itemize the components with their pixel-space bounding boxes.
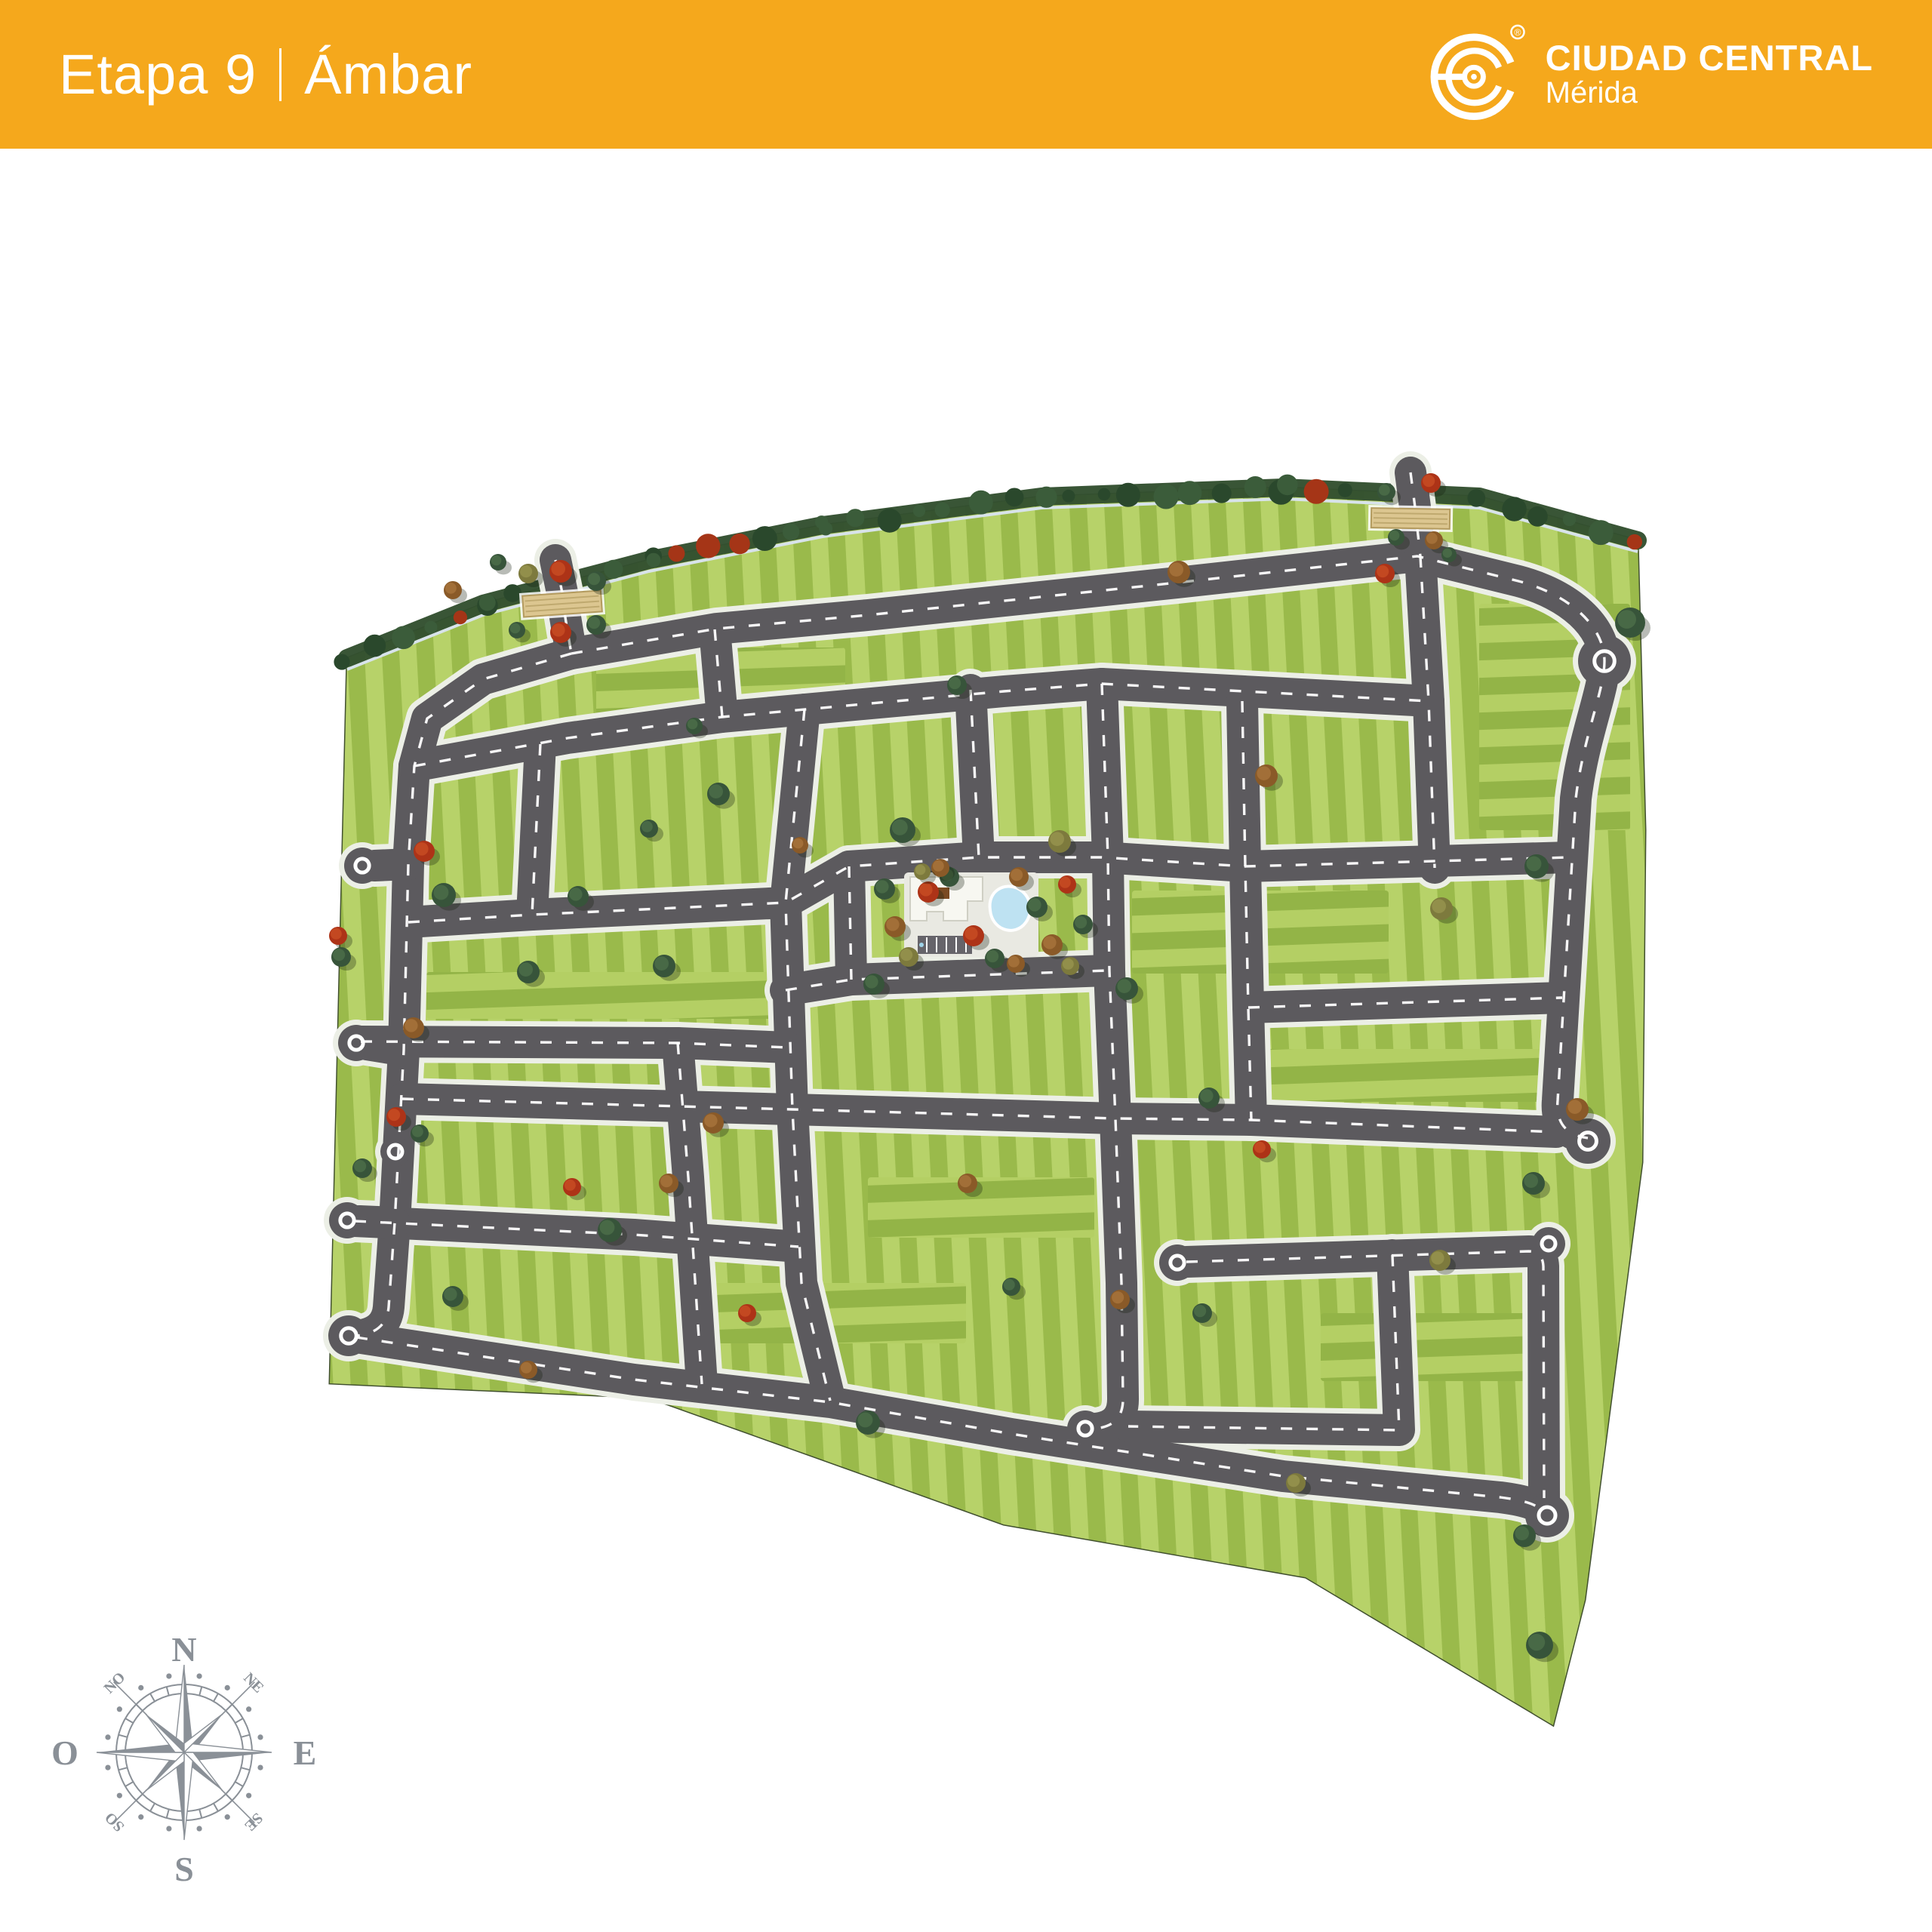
stage-label: Etapa 9 (59, 47, 257, 103)
brand-logo-icon: ® (1422, 23, 1526, 127)
logo-registered-mark: ® (1514, 27, 1521, 38)
compass-rose: N S E O NO NE SO SE (51, 1630, 316, 1888)
header-bar: Etapa 9 Ámbar ® CIUDAD CENTRAL Mérida (0, 0, 1932, 149)
compass-east-label: E (294, 1734, 317, 1772)
logo-eye-dot (1471, 73, 1477, 79)
compass-west-label: O (51, 1734, 78, 1772)
brand-logo-text: CIUDAD CENTRAL Mérida (1546, 39, 1873, 110)
amenity-pool (990, 886, 1031, 930)
page-title: Etapa 9 Ámbar (59, 47, 472, 103)
brand-logo: ® CIUDAD CENTRAL Mérida (1422, 23, 1873, 127)
entrance-gate-east (1368, 505, 1454, 532)
compass-north-label: N (171, 1630, 196, 1669)
poster: Etapa 9 Ámbar ® CIUDAD CENTRAL Mérida (0, 0, 1932, 1932)
masterplan-map: N S E O NO NE SO SE (0, 0, 1932, 1932)
title-divider (279, 48, 281, 101)
brand-name: CIUDAD CENTRAL (1546, 39, 1873, 78)
phase-name-label: Ámbar (304, 47, 472, 103)
brand-city: Mérida (1546, 77, 1873, 109)
compass-graphic (97, 1665, 272, 1840)
compass-south-label: S (174, 1850, 194, 1888)
